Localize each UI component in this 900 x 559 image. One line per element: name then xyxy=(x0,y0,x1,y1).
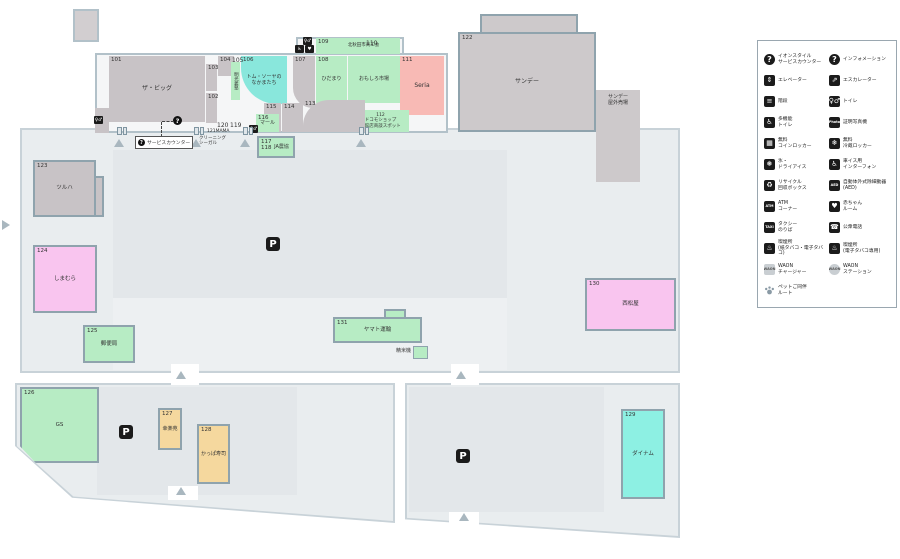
baby-room-icon: ♥ xyxy=(829,201,840,212)
stairs-icon: ≡ xyxy=(764,96,775,107)
store-name: GS xyxy=(56,422,64,429)
accessible-toilet-icon: ♿ xyxy=(764,117,775,128)
store-number: 127 xyxy=(162,411,173,417)
site-entrance-arrow-icon xyxy=(2,220,10,230)
legend-item: ♀♂トイレ xyxy=(829,91,891,112)
store-number: 106 xyxy=(243,57,254,63)
legend-item: ♿多機能 トイレ xyxy=(764,112,826,133)
restroom-icon: ♀♂ xyxy=(94,116,103,124)
store-number: 104 xyxy=(220,57,231,63)
store-number: 115 xyxy=(266,104,277,110)
store-name: トム・ソーヤの なかまたち xyxy=(246,74,281,87)
store-name: しまむら xyxy=(54,276,76,283)
store-103[interactable]: 103 xyxy=(206,64,217,91)
legend-label: 氷・ ドライアイス xyxy=(778,159,806,171)
legend-item: ペットご同伴 ルート xyxy=(764,280,826,301)
wheelchair-intercom-icon: ♿ xyxy=(829,159,840,170)
legend-label: 自動体外式除細動器 (AED) xyxy=(843,180,886,192)
public-phone-icon: ☎ xyxy=(829,222,840,233)
store-123[interactable]: 123ツルハ xyxy=(33,160,96,217)
atm-icon: ATM xyxy=(764,201,775,212)
toilet-icon: ♀♂ xyxy=(829,96,840,107)
legend-item: Photo証明写真機 xyxy=(829,112,891,133)
map-label: 105 xyxy=(232,57,243,64)
waon-charger-icon: WAON xyxy=(764,264,775,275)
legend-label: 車イス用 インターフォン xyxy=(843,159,876,171)
store-number: 113 xyxy=(305,101,316,107)
store-number: 103 xyxy=(208,65,219,71)
smoking-area-icon: ♨ xyxy=(764,243,775,254)
parking-lot-lower-right xyxy=(409,387,604,512)
legend-label: 公衆電話 xyxy=(843,225,862,231)
entrance-arrow-icon xyxy=(356,139,366,147)
legend-item: ♻リサイクル 回収ボックス xyxy=(764,175,826,196)
store-name: ヤマト運輸 xyxy=(364,327,392,334)
store-127[interactable]: 127幸楽苑 xyxy=(158,408,182,450)
store-number: 107 xyxy=(295,57,306,63)
legend-label: イオンスタイル サービスカウンター xyxy=(778,54,821,66)
waon-station-icon: WAON xyxy=(829,264,840,275)
escalator-icon: ⇗ xyxy=(829,75,840,86)
legend-label: 多機能 トイレ xyxy=(778,117,792,129)
store-name: 明光義塾 xyxy=(233,72,239,90)
store-number: 122 xyxy=(462,35,473,41)
store-name: ひだまり xyxy=(322,76,342,82)
store-name: サンデー 屋外売場 xyxy=(608,94,628,107)
store-name: ザ・ビッグ xyxy=(142,85,172,93)
legend-item: ♨喫煙所 (紙タバコ・電子タバコ) xyxy=(764,238,826,259)
parking-lot-upper-south xyxy=(113,298,507,370)
e-smoking-area-icon: ♨ xyxy=(829,243,840,254)
store-name: 郵便局 xyxy=(101,341,118,348)
legend-label: インフォメーション xyxy=(843,57,886,63)
store-name: JA農協 xyxy=(274,144,289,150)
legend-label: トイレ xyxy=(843,99,857,105)
store-number: 101 xyxy=(111,57,122,63)
legend-item: ⇕エレベーター xyxy=(764,70,826,91)
pet-route-icon xyxy=(764,285,775,296)
service-counter-callout: ? サービスカウンター xyxy=(135,136,193,149)
store-block-18[interactable]: サンデー 屋外売場 xyxy=(596,90,640,182)
store-number: 109 xyxy=(318,39,329,45)
store-block-4[interactable]: 明光義塾 xyxy=(231,62,240,100)
entrance-door-icon xyxy=(359,127,369,135)
legend-label: エレベーター xyxy=(778,78,807,84)
building-annex-topleft xyxy=(73,9,99,42)
legend-label: タクシー のりば xyxy=(778,222,797,234)
store-101[interactable]: 101ザ・ビッグ xyxy=(109,56,205,122)
service-counter-label: サービスカウンター xyxy=(147,139,190,146)
legend-item: WAONWAON チャージャー xyxy=(764,259,826,280)
entrance-door-icon xyxy=(243,127,253,135)
site-entrance-arrow-icon xyxy=(176,487,186,495)
store-108[interactable]: 108ひだまり xyxy=(316,56,347,103)
legend-label: WAON ステーション xyxy=(843,264,872,276)
store-126[interactable]: 126GS xyxy=(20,387,99,463)
legend-label: ATM コーナー xyxy=(778,201,797,213)
store-number: 116 xyxy=(258,115,269,121)
legend-item: ☎公衆電話 xyxy=(829,217,891,238)
parking-icon: P xyxy=(119,425,133,439)
coin-locker-icon: ▦ xyxy=(764,138,775,149)
store-number: 126 xyxy=(24,390,35,396)
legend-item: AED自動体外式除細動器 (AED) xyxy=(829,175,891,196)
entrance-arrow-icon xyxy=(240,139,250,147)
store-number: 102 xyxy=(208,94,219,100)
legend-item: ⇗エスカレーター xyxy=(829,70,891,91)
store-number: 123 xyxy=(37,163,48,169)
entrance-door-icon xyxy=(194,127,204,135)
legend-item: ?イオンスタイル サービスカウンター xyxy=(764,49,826,70)
legend-label: 喫煙所 (紙タバコ・電子タバコ) xyxy=(778,240,826,258)
store-name: かっぱ寿司 xyxy=(201,451,226,457)
store-117[interactable]: 117 118JA農協 xyxy=(257,136,295,158)
legend-label: WAON チャージャー xyxy=(778,264,806,276)
site-entrance-arrow-icon xyxy=(456,371,466,379)
site-entrance-arrow-icon xyxy=(176,371,186,379)
floor-map: 101ザ・ビッグ104103102明光義塾106トム・ソーヤの なかまたち107… xyxy=(0,0,900,559)
legend-label: 赤ちゃん ルーム xyxy=(843,201,862,213)
site-entrance-arrow-icon xyxy=(459,513,469,521)
store-122[interactable]: 122サンデー xyxy=(458,32,596,132)
store-number: 131 xyxy=(337,320,348,326)
map-label: 精米機 xyxy=(396,348,411,354)
legend-item: ♥赤ちゃん ルーム xyxy=(829,196,891,217)
restroom-icon: ♀♂ xyxy=(303,37,312,45)
store-124[interactable]: 124しまむら xyxy=(33,245,97,313)
store-number: 129 xyxy=(625,412,636,418)
service-counter-icon: ? xyxy=(173,116,182,125)
legend-item: ATMATM コーナー xyxy=(764,196,826,217)
map-label: 110 xyxy=(366,40,377,47)
store-116[interactable]: 116マール xyxy=(256,114,279,132)
store-name: サンデー xyxy=(515,78,539,86)
store-number: 130 xyxy=(589,281,600,287)
legend-label: 喫煙所 (電子タバコ専用) xyxy=(843,243,880,255)
store-113[interactable]: 113 xyxy=(303,100,365,132)
store-102[interactable]: 102 xyxy=(206,93,217,123)
store-129[interactable]: 129ダイナム xyxy=(621,409,665,499)
elevator-icon: ⇕ xyxy=(764,75,775,86)
legend-item: ♨喫煙所 (電子タバコ専用) xyxy=(829,238,891,259)
store-111[interactable]: 111Seria xyxy=(400,56,444,115)
legend-item: ❄無料 冷蔵ロッカー xyxy=(829,133,891,154)
information-icon: ? xyxy=(829,54,840,65)
cold-locker-icon: ❄ xyxy=(829,138,840,149)
baby-room-icon: ♥ xyxy=(305,45,314,53)
store-number: 125 xyxy=(87,328,98,334)
legend-item: TAXIタクシー のりば xyxy=(764,217,826,238)
store-number: 108 xyxy=(318,57,329,63)
legend-item: WAONWAON ステーション xyxy=(829,259,891,280)
legend-item: ♿車イス用 インターフォン xyxy=(829,154,891,175)
map-label: 121MAMA xyxy=(207,129,230,134)
aed-icon: AED xyxy=(829,180,840,191)
store-number: 114 xyxy=(284,104,295,110)
question-icon: ? xyxy=(138,139,145,146)
legend-label: リサイクル 回収ボックス xyxy=(778,180,807,192)
accessible-restroom-icon: ♿ xyxy=(295,45,304,53)
store-number: 124 xyxy=(37,248,48,254)
store-131[interactable]: 131ヤマト運輸 xyxy=(333,317,422,343)
store-name: ツルハ xyxy=(56,185,73,192)
store-name: Seria xyxy=(414,82,429,90)
ice-icon: ❅ xyxy=(764,159,775,170)
legend-item: ?インフォメーション xyxy=(829,49,891,70)
recycle-box-icon: ♻ xyxy=(764,180,775,191)
store-125[interactable]: 125郵便局 xyxy=(83,325,135,363)
store-109[interactable]: 109北秋田市商工会 xyxy=(316,38,400,54)
legend-panel: ?イオンスタイル サービスカウンター?インフォメーション⇕エレベーター⇗エスカレ… xyxy=(757,40,897,308)
store-128[interactable]: 128かっぱ寿司 xyxy=(197,424,230,484)
parking-icon: P xyxy=(266,237,280,251)
legend-label: 無料 冷蔵ロッカー xyxy=(843,138,872,150)
legend-item: ▦無料 コインロッカー xyxy=(764,133,826,154)
legend-label: エスカレーター xyxy=(843,78,877,84)
entrance-door-icon xyxy=(117,127,127,135)
rice-mill-block xyxy=(413,346,428,359)
store-number: 117 118 xyxy=(261,139,272,152)
parking-icon: P xyxy=(456,449,470,463)
store-name: 西松屋 xyxy=(622,301,639,308)
legend-label: 証明写真機 xyxy=(843,120,867,126)
store-114[interactable]: 114 xyxy=(282,103,303,132)
store-name: おもしろ市場 xyxy=(359,76,389,82)
legend-item: ≡階段 xyxy=(764,91,826,112)
map-label: クリーニング シーガル xyxy=(199,136,226,147)
legend-item: ❅氷・ ドライアイス xyxy=(764,154,826,175)
legend-label: ペットご同伴 ルート xyxy=(778,285,807,297)
map-label: 119 xyxy=(230,122,241,129)
store-name: ダイナム xyxy=(632,451,654,458)
service-counter-connector xyxy=(161,122,162,137)
entrance-arrow-icon xyxy=(114,139,124,147)
legend-label: 無料 コインロッカー xyxy=(778,138,812,150)
store-block-9[interactable]: おもしろ市場 xyxy=(348,56,400,103)
store-name: 幸楽苑 xyxy=(162,426,177,432)
legend-label: 階段 xyxy=(778,99,788,105)
store-number: 111 xyxy=(402,57,413,63)
service-counter-connector xyxy=(162,121,174,122)
service-counter-icon: ? xyxy=(764,54,775,65)
photo-booth-icon: Photo xyxy=(829,117,840,128)
store-130[interactable]: 130西松屋 xyxy=(585,278,676,331)
store-number: 128 xyxy=(201,427,212,433)
taxi-icon: TAXI xyxy=(764,222,775,233)
